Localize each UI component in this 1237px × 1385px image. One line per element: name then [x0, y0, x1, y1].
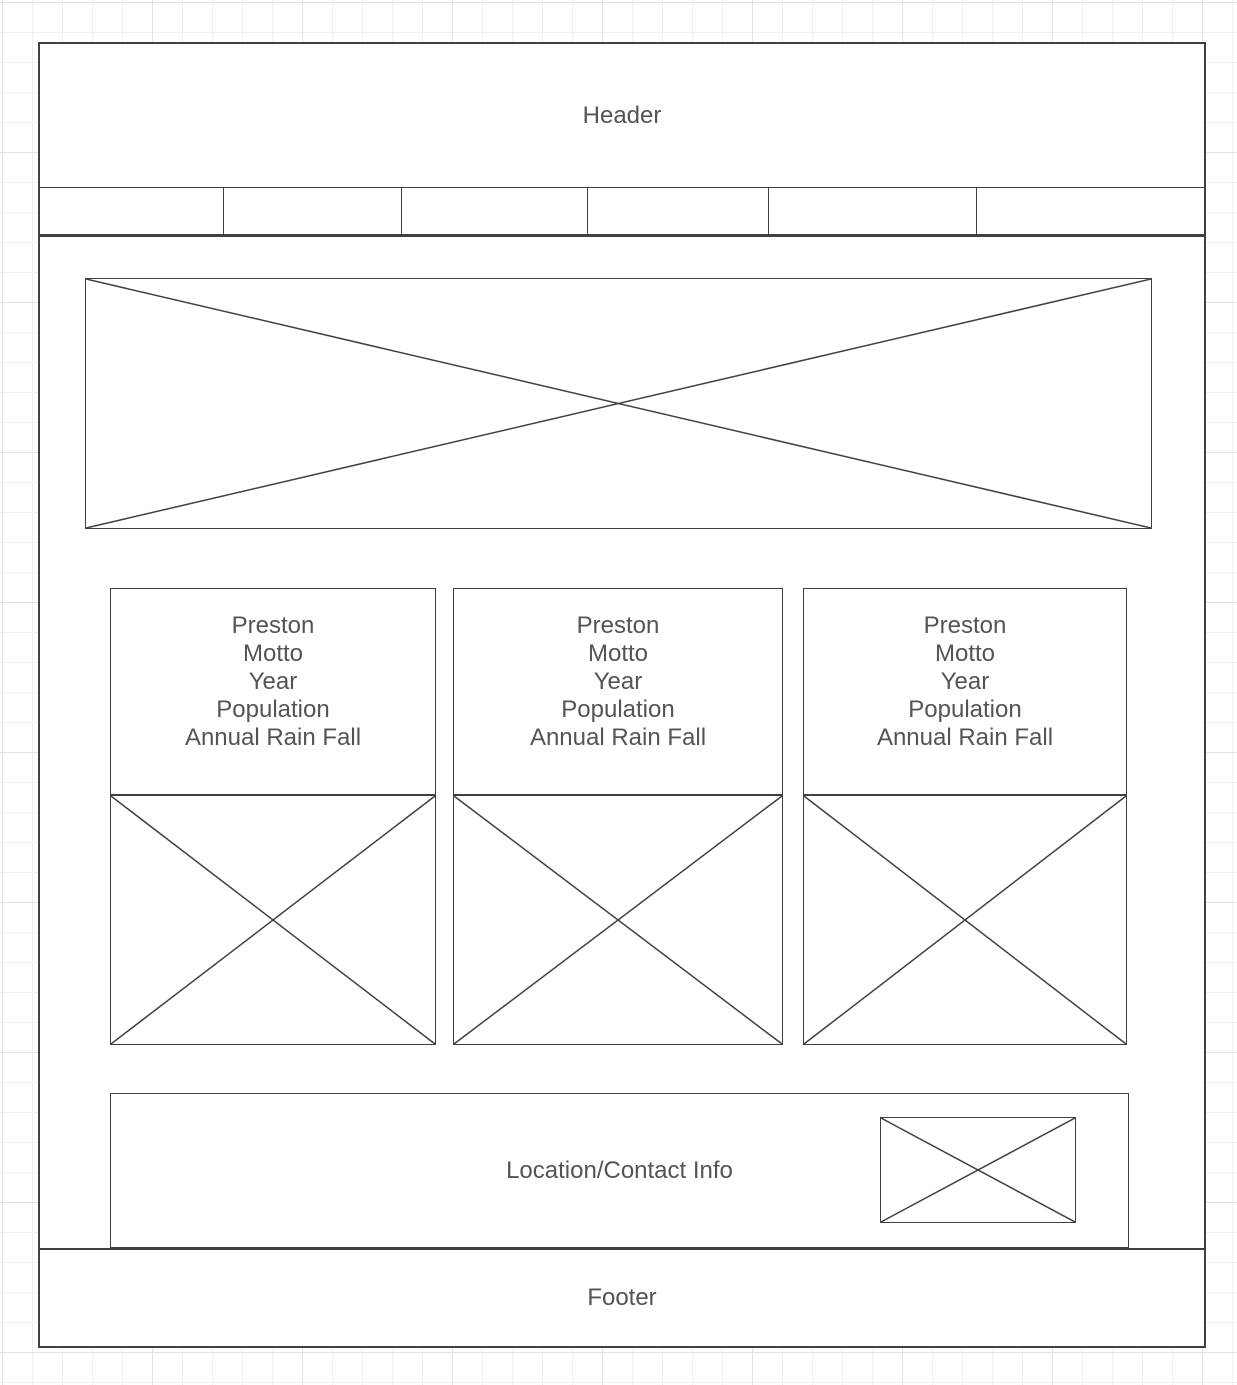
- hero-image-placeholder[interactable]: [85, 278, 1152, 529]
- nav-item-5[interactable]: [769, 188, 977, 234]
- card-3-info[interactable]: Preston Motto Year Population Annual Rai…: [803, 588, 1127, 795]
- placeholder-x-icon: [111, 796, 435, 1044]
- card-2-image-placeholder[interactable]: [453, 795, 783, 1045]
- card-1-image-placeholder[interactable]: [110, 795, 436, 1045]
- card-line: Preston: [454, 612, 782, 640]
- nav-item-1[interactable]: [40, 188, 224, 234]
- card-line: Year: [454, 668, 782, 696]
- card-line: Year: [804, 668, 1126, 696]
- card-line: Annual Rain Fall: [111, 724, 435, 752]
- card-line: Motto: [111, 640, 435, 668]
- header-band: Header: [40, 44, 1204, 187]
- card-line: Motto: [454, 640, 782, 668]
- card-line: Annual Rain Fall: [454, 724, 782, 752]
- card-line: Preston: [804, 612, 1126, 640]
- nav-bar: [40, 187, 1204, 237]
- nav-item-6[interactable]: [977, 188, 1204, 234]
- card-3-image-placeholder[interactable]: [803, 795, 1127, 1045]
- location-contact-label: Location/Contact Info: [506, 1157, 733, 1185]
- wireframe-page-container: Header Preston Motto Year Population Ann…: [38, 42, 1206, 1348]
- nav-item-4[interactable]: [588, 188, 769, 234]
- card-line: Population: [111, 696, 435, 724]
- card-line: Preston: [111, 612, 435, 640]
- nav-item-2[interactable]: [224, 188, 402, 234]
- canvas-grid: { "header": { "label": "Header" }, "nav"…: [0, 0, 1237, 1385]
- footer-band: Footer: [40, 1248, 1204, 1346]
- card-1-info[interactable]: Preston Motto Year Population Annual Rai…: [110, 588, 436, 795]
- header-label: Header: [583, 102, 662, 130]
- card-line: Population: [454, 696, 782, 724]
- nav-item-3[interactable]: [402, 188, 588, 234]
- footer-label: Footer: [587, 1284, 656, 1312]
- location-image-placeholder[interactable]: [880, 1117, 1076, 1223]
- placeholder-x-icon: [454, 796, 782, 1044]
- card-line: Motto: [804, 640, 1126, 668]
- placeholder-x-icon: [804, 796, 1126, 1044]
- location-contact-section: Location/Contact Info: [110, 1093, 1129, 1248]
- placeholder-x-icon: [881, 1118, 1075, 1222]
- card-line: Population: [804, 696, 1126, 724]
- placeholder-x-icon: [86, 279, 1151, 528]
- card-line: Year: [111, 668, 435, 696]
- card-line: Annual Rain Fall: [804, 724, 1126, 752]
- card-2-info[interactable]: Preston Motto Year Population Annual Rai…: [453, 588, 783, 795]
